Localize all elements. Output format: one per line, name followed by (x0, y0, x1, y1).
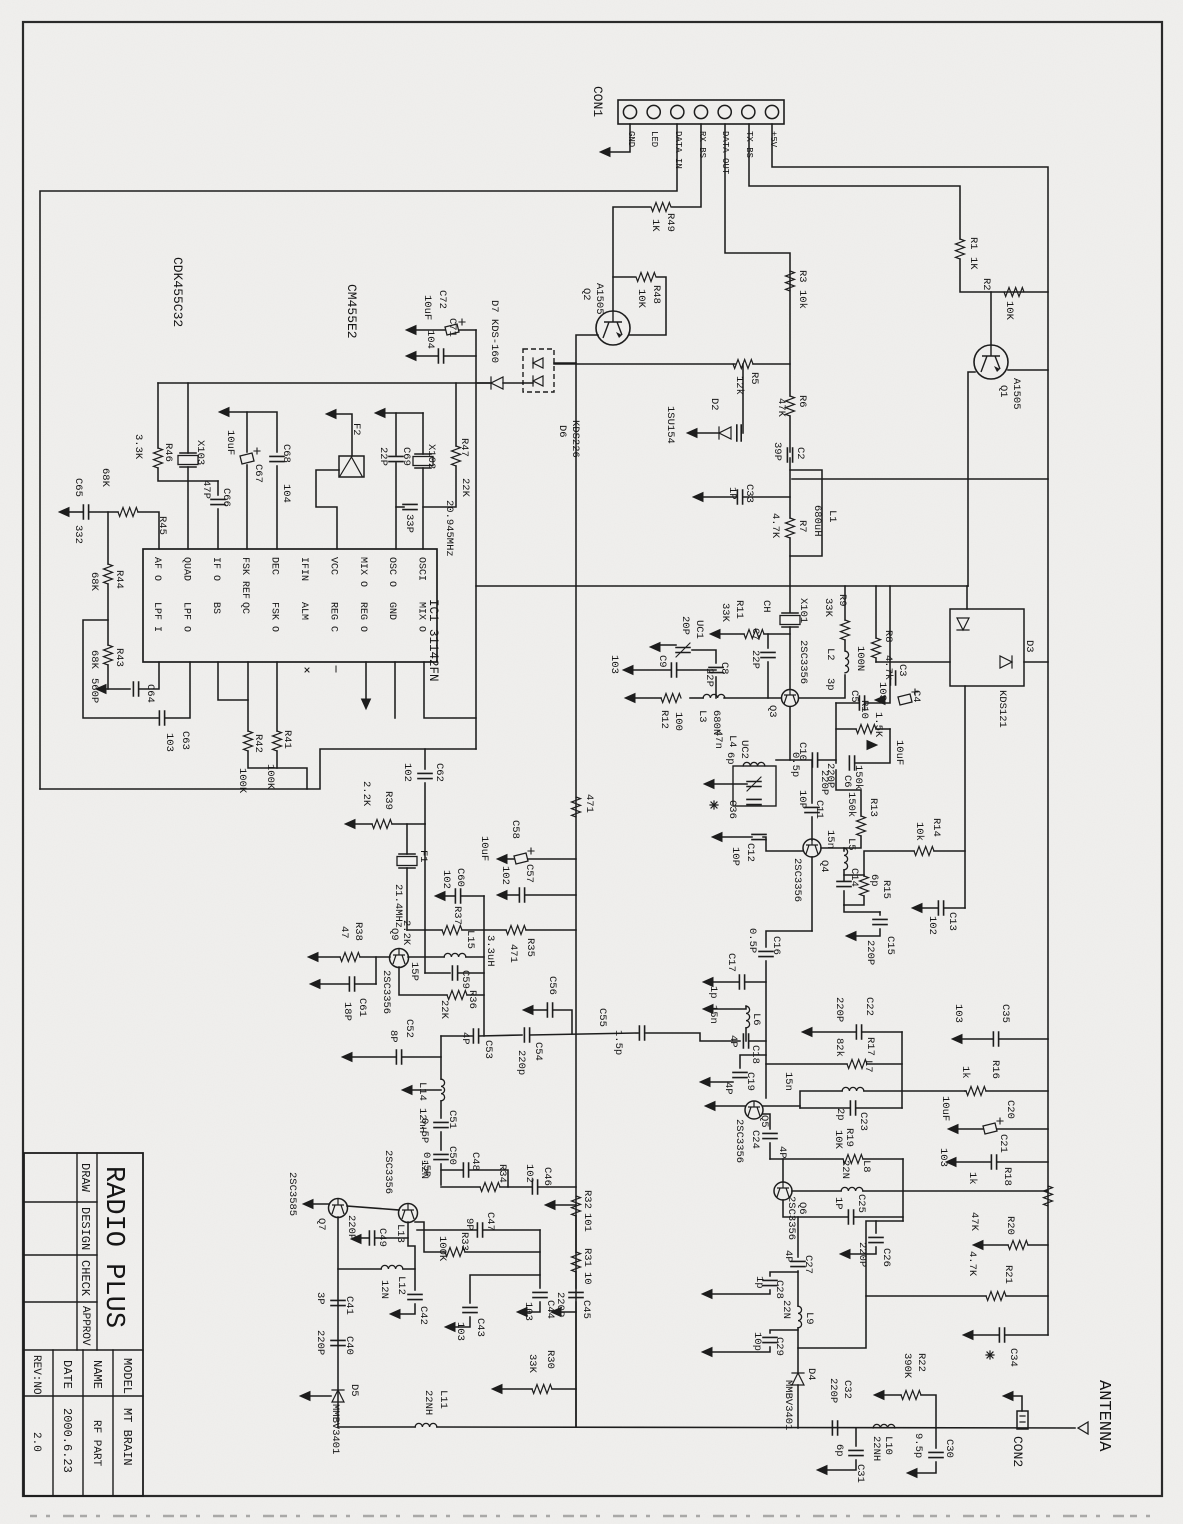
svg-text:1K: 1K (649, 219, 661, 232)
svg-text:FSK REF: FSK REF (239, 557, 250, 599)
svg-text:C62: C62 (433, 763, 445, 782)
svg-text:1k: 1k (966, 1172, 978, 1185)
svg-text:L8: L8 (860, 1160, 872, 1173)
svg-text:IC1 31142FN: IC1 31142FN (426, 599, 440, 682)
svg-text:CON1: CON1 (590, 86, 605, 117)
svg-text:R16: R16 (989, 1060, 1001, 1079)
svg-text:R36: R36 (466, 990, 478, 1009)
svg-text:Q4: Q4 (818, 860, 830, 873)
svg-text:C30: C30 (943, 1439, 955, 1458)
svg-text:APPROV: APPROV (79, 1306, 91, 1346)
svg-text:103: 103 (454, 1322, 466, 1341)
svg-text:C13: C13 (946, 912, 958, 931)
svg-text:C20: C20 (1004, 1100, 1016, 1119)
svg-text:C54: C54 (532, 1042, 544, 1061)
svg-text:LED: LED (649, 131, 659, 147)
svg-text:C33: C33 (743, 484, 755, 503)
svg-text:102: 102 (523, 1164, 535, 1183)
svg-text:10k: 10k (913, 822, 925, 841)
svg-text:C55: C55 (596, 1008, 608, 1027)
svg-text:22P: 22P (749, 650, 761, 669)
svg-text:6p: 6p (724, 752, 736, 765)
svg-text:REV:NO: REV:NO (30, 1355, 42, 1395)
svg-text:R5: R5 (748, 372, 760, 385)
svg-text:D5: D5 (348, 1384, 360, 1397)
svg-text:C11: C11 (813, 800, 825, 819)
svg-text:2SC3356: 2SC3356 (380, 970, 392, 1014)
svg-text:33P: 33P (403, 514, 415, 533)
svg-text:R45: R45 (156, 516, 168, 535)
svg-text:C72: C72 (436, 290, 448, 309)
svg-text:R13: R13 (867, 798, 879, 817)
svg-text:C42: C42 (417, 1306, 429, 1325)
svg-text:R30: R30 (544, 1350, 556, 1369)
svg-text:C43: C43 (474, 1318, 486, 1337)
svg-text:1k: 1k (959, 1066, 971, 1079)
svg-text:KDS226: KDS226 (569, 420, 581, 458)
svg-text:Q9: Q9 (388, 928, 400, 941)
svg-text:R42: R42 (252, 734, 264, 753)
svg-text:R39: R39 (382, 791, 394, 810)
svg-text:D7 KDS-160: D7 KDS-160 (488, 300, 500, 363)
svg-text:R44: R44 (113, 570, 125, 589)
svg-text:R48: R48 (650, 285, 662, 304)
svg-text:4P: 4P (459, 1032, 471, 1045)
svg-text:LPF I: LPF I (151, 602, 162, 632)
svg-text:C27: C27 (802, 1255, 814, 1274)
svg-text:22K: 22K (459, 478, 471, 498)
svg-text:R33: R33 (458, 1232, 470, 1251)
svg-text:100K: 100K (436, 1236, 448, 1262)
svg-text:L9: L9 (803, 1312, 815, 1325)
svg-text:Q2: Q2 (580, 288, 592, 301)
svg-text:1SU154: 1SU154 (664, 406, 676, 444)
svg-text:9P: 9P (463, 1218, 475, 1231)
svg-text:220P: 220P (345, 1215, 357, 1240)
svg-text:A1505: A1505 (1010, 378, 1022, 410)
svg-text:R18: R18 (1001, 1167, 1013, 1186)
svg-text:AF O: AF O (151, 557, 162, 581)
svg-text:22NH: 22NH (422, 1390, 434, 1415)
svg-text:220p: 220p (515, 1050, 527, 1075)
svg-text:QC: QC (239, 602, 250, 614)
svg-text:C34: C34 (1007, 1348, 1019, 1367)
svg-text:1P: 1P (832, 1197, 844, 1210)
svg-text:R32: R32 (581, 1190, 593, 1209)
svg-text:C50: C50 (446, 1146, 458, 1165)
svg-text:L11: L11 (437, 1390, 449, 1409)
svg-text:C67: C67 (252, 464, 264, 483)
svg-text:R9: R9 (836, 594, 848, 607)
svg-text:10P: 10P (729, 847, 741, 866)
svg-text:103: 103 (952, 1004, 964, 1023)
svg-text:REG C: REG C (327, 602, 338, 632)
svg-text:R31: R31 (581, 1248, 593, 1267)
svg-text:R8: R8 (882, 630, 894, 643)
svg-text:C15: C15 (884, 936, 896, 955)
svg-text:390K: 390K (901, 1353, 913, 1379)
svg-text:15n: 15n (782, 1072, 794, 1091)
svg-text:X102: X102 (425, 444, 437, 469)
svg-text:MMBV3401: MMBV3401 (329, 1404, 341, 1454)
svg-text:2SC3356: 2SC3356 (733, 1119, 745, 1163)
svg-text:10K: 10K (832, 1130, 844, 1150)
svg-text:C17: C17 (725, 953, 737, 972)
svg-text:C57: C57 (523, 864, 535, 883)
svg-text:471: 471 (507, 944, 519, 963)
svg-text:C60: C60 (454, 868, 466, 887)
svg-text:102: 102 (926, 916, 938, 935)
svg-text:D3: D3 (1023, 640, 1035, 653)
svg-text:C64: C64 (144, 684, 156, 703)
svg-text:C53: C53 (482, 1040, 494, 1059)
svg-text:18P: 18P (341, 1002, 353, 1021)
svg-text:0.5p: 0.5p (789, 752, 801, 777)
svg-text:4.7K: 4.7K (769, 513, 781, 539)
svg-text:LPF O: LPF O (180, 602, 191, 632)
svg-text:C46: C46 (541, 1167, 553, 1186)
svg-text:C35: C35 (999, 1004, 1011, 1023)
svg-text:C52: C52 (403, 1019, 415, 1038)
svg-text:RX BS: RX BS (697, 131, 707, 158)
svg-text:DATE: DATE (60, 1360, 74, 1389)
svg-text:BS: BS (210, 602, 221, 614)
svg-text:3p: 3p (824, 678, 836, 691)
svg-text:R35: R35 (524, 938, 536, 957)
svg-text:332: 332 (72, 525, 84, 544)
svg-text:L2: L2 (824, 648, 836, 661)
svg-text:UC1: UC1 (693, 620, 705, 639)
svg-text:C14: C14 (848, 868, 860, 887)
svg-text:R47: R47 (458, 438, 470, 457)
svg-text:DRAW: DRAW (78, 1163, 92, 1193)
svg-text:10k: 10k (796, 290, 808, 309)
svg-text:C36: C36 (726, 800, 738, 819)
svg-text:103: 103 (937, 1148, 949, 1167)
svg-text:C47: C47 (484, 1212, 496, 1231)
svg-text:C2: C2 (794, 447, 806, 460)
svg-text:47P: 47P (200, 480, 212, 499)
svg-text:L15: L15 (464, 930, 476, 949)
svg-text:C23: C23 (857, 1112, 869, 1131)
svg-text:10uF: 10uF (224, 430, 236, 455)
svg-text:4P: 4P (727, 1035, 739, 1048)
svg-text:47K: 47K (968, 1212, 980, 1232)
svg-text:2SC3356: 2SC3356 (791, 858, 803, 902)
svg-text:C48: C48 (469, 1152, 481, 1171)
svg-text:47: 47 (338, 926, 350, 939)
svg-text:R49: R49 (664, 213, 676, 232)
svg-text:1.5p: 1.5p (612, 1030, 624, 1055)
svg-text:RADIO PLUS: RADIO PLUS (98, 1166, 128, 1328)
svg-text:2.2K: 2.2K (400, 920, 412, 946)
svg-text:10: 10 (581, 1272, 593, 1285)
svg-text:C56: C56 (546, 976, 558, 995)
svg-text:10uF: 10uF (478, 836, 490, 861)
svg-text:C69: C69 (400, 447, 412, 466)
svg-text:C12: C12 (744, 843, 756, 862)
svg-text:6p: 6p (868, 874, 880, 887)
svg-text:2SC3356: 2SC3356 (797, 640, 809, 684)
svg-text:150k: 150k (852, 765, 864, 790)
svg-text:R15: R15 (880, 880, 892, 899)
svg-text:UC2: UC2 (738, 740, 750, 759)
svg-text:4P: 4P (776, 1146, 788, 1159)
svg-text:ALM: ALM (298, 602, 309, 620)
svg-text:103: 103 (163, 733, 175, 752)
svg-text:R11: R11 (733, 600, 745, 619)
svg-text:22P: 22P (703, 668, 715, 687)
svg-text:R21: R21 (1002, 1265, 1014, 1284)
svg-text:0.5P: 0.5P (746, 928, 758, 953)
svg-text:R34: R34 (496, 1164, 508, 1183)
svg-text:4P: 4P (722, 1082, 734, 1095)
svg-text:10uF: 10uF (421, 295, 433, 320)
svg-text:2SC3356: 2SC3356 (785, 1196, 797, 1240)
svg-text:68K: 68K (88, 572, 100, 592)
svg-text:4.7K: 4.7K (966, 1251, 978, 1277)
svg-text:D4: D4 (805, 1368, 817, 1381)
svg-text:R14: R14 (930, 818, 942, 837)
svg-text:CDK455C32: CDK455C32 (170, 257, 185, 327)
svg-text:X103: X103 (194, 440, 206, 465)
svg-text:R7: R7 (796, 520, 808, 533)
svg-text:33K: 33K (719, 603, 731, 623)
svg-text:MT BRAIN: MT BRAIN (120, 1408, 134, 1466)
svg-text:22N: 22N (839, 1160, 851, 1179)
svg-text:9.5p: 9.5p (912, 1433, 924, 1458)
svg-text:1.5K: 1.5K (872, 712, 884, 738)
svg-text:R22: R22 (915, 1353, 927, 1372)
svg-text:L14: L14 (416, 1082, 428, 1101)
svg-text:IF O: IF O (210, 557, 221, 581)
svg-text:REG O: REG O (357, 602, 368, 632)
svg-text:10uF: 10uF (939, 1096, 951, 1121)
svg-text:10K: 10K (1003, 301, 1015, 321)
svg-text:ANTENNA: ANTENNA (1094, 1380, 1113, 1452)
svg-text:A1505: A1505 (593, 283, 605, 315)
svg-text:12N: 12N (378, 1280, 390, 1299)
svg-text:R38: R38 (352, 922, 364, 941)
svg-text:39P: 39P (771, 442, 783, 461)
svg-text:10uF: 10uF (893, 740, 905, 765)
svg-text:10P: 10P (796, 790, 808, 809)
svg-text:L3: L3 (696, 710, 708, 723)
svg-text:20P: 20P (679, 616, 691, 635)
svg-text:220P: 220P (827, 1378, 839, 1403)
svg-text:3.3K: 3.3K (132, 434, 144, 460)
svg-text:MMBV3401: MMBV3401 (782, 1380, 794, 1430)
svg-text:82k: 82k (833, 1038, 845, 1057)
svg-text:R6: R6 (796, 395, 808, 408)
svg-text:2.2K: 2.2K (360, 781, 372, 807)
svg-text:R17: R17 (864, 1037, 876, 1056)
svg-text:C63: C63 (179, 731, 191, 750)
svg-text:2000.6.23: 2000.6.23 (60, 1408, 74, 1473)
svg-text:3.3uH: 3.3uH (484, 935, 496, 967)
svg-text:R43: R43 (113, 648, 125, 667)
svg-text:MODEL: MODEL (120, 1358, 134, 1394)
svg-text:22K: 22K (438, 1000, 450, 1020)
svg-text:C25: C25 (855, 1194, 867, 1213)
svg-text:OSC O: OSC O (386, 557, 397, 587)
svg-text:C29: C29 (773, 1337, 785, 1356)
svg-text:680uH: 680uH (811, 505, 823, 537)
svg-text:220P: 220P (314, 1330, 326, 1355)
svg-text:C8: C8 (718, 662, 730, 675)
svg-text:C58: C58 (509, 820, 521, 839)
svg-text:102: 102 (401, 763, 413, 782)
svg-text:R41: R41 (281, 730, 293, 749)
svg-text:68K: 68K (99, 468, 111, 488)
svg-text:150k: 150k (845, 792, 857, 817)
svg-text:D6: D6 (556, 425, 568, 438)
svg-text:2SC3585: 2SC3585 (286, 1172, 298, 1216)
svg-text:L12: L12 (395, 1276, 407, 1295)
svg-text:C6: C6 (841, 775, 853, 788)
svg-text:220P: 220P (818, 770, 830, 795)
svg-text:C71: C71 (446, 318, 458, 337)
svg-text:100N: 100N (854, 646, 866, 671)
svg-text:R2: R2 (980, 278, 992, 291)
svg-text:R20: R20 (1004, 1216, 1016, 1235)
svg-text:C4: C4 (910, 690, 922, 703)
svg-text:C41: C41 (343, 1296, 355, 1315)
svg-text:C3: C3 (896, 664, 908, 677)
svg-text:47K: 47K (775, 398, 787, 418)
svg-text:X101: X101 (797, 598, 809, 623)
svg-text:MIX O: MIX O (416, 602, 427, 632)
svg-text:Q7: Q7 (315, 1218, 327, 1231)
svg-text:FSK O: FSK O (269, 602, 280, 632)
svg-text:100K: 100K (236, 768, 248, 794)
svg-text:GND: GND (626, 131, 636, 147)
svg-text:C45: C45 (580, 1300, 592, 1319)
svg-text:560P: 560P (88, 678, 100, 703)
svg-text:CH: CH (760, 600, 772, 613)
svg-text:47n: 47n (712, 730, 724, 749)
svg-text:C32: C32 (841, 1380, 853, 1399)
svg-text:15n: 15n (824, 830, 836, 849)
svg-text:10p: 10p (751, 1332, 763, 1351)
svg-text:4P: 4P (782, 1250, 794, 1263)
svg-text:QUAD: QUAD (180, 557, 191, 581)
svg-text:C28: C28 (773, 1280, 785, 1299)
svg-text:C21: C21 (997, 1134, 1009, 1153)
svg-text:4.7k: 4.7k (882, 655, 894, 680)
svg-text:C51: C51 (446, 1110, 458, 1129)
svg-text:C26: C26 (880, 1248, 892, 1267)
svg-text:L6: L6 (750, 1013, 762, 1026)
svg-text:Q3: Q3 (766, 705, 778, 718)
svg-text:104: 104 (280, 484, 292, 503)
svg-text:+5V: +5V (768, 131, 778, 148)
svg-text:220P: 220P (833, 997, 845, 1022)
svg-text:KDS121: KDS121 (996, 690, 1008, 728)
svg-text:L1: L1 (826, 510, 838, 523)
svg-text:OSCI: OSCI (416, 557, 427, 581)
svg-text:L10: L10 (882, 1436, 894, 1455)
svg-text:102: 102 (440, 870, 452, 889)
svg-text:R3: R3 (796, 270, 808, 283)
svg-text:C66: C66 (220, 488, 232, 507)
svg-text:RF PART: RF PART (90, 1420, 102, 1467)
svg-text:C19: C19 (744, 1072, 756, 1091)
svg-text:102: 102 (499, 866, 511, 885)
svg-text:Q5: Q5 (758, 1115, 770, 1128)
svg-text:L7: L7 (862, 1060, 874, 1073)
svg-text:0.5P: 0.5P (418, 1118, 430, 1143)
svg-text:471: 471 (583, 794, 595, 813)
svg-text:100: 100 (672, 712, 684, 731)
svg-text:DESIGN: DESIGN (78, 1207, 92, 1250)
svg-text:104: 104 (424, 330, 436, 349)
svg-text:CHECK: CHECK (78, 1260, 92, 1297)
svg-text:22NH: 22NH (870, 1436, 882, 1461)
svg-text:C7: C7 (749, 628, 761, 641)
svg-text:Q1: Q1 (997, 385, 1009, 398)
svg-text:D2: D2 (708, 398, 720, 411)
svg-text:R1: R1 (967, 237, 979, 250)
svg-text:F1: F1 (417, 850, 429, 863)
svg-text:68K: 68K (88, 650, 100, 670)
svg-text:22P: 22P (377, 447, 389, 466)
svg-text:L13: L13 (394, 1224, 406, 1243)
svg-text:R12: R12 (658, 710, 670, 729)
svg-text:2SC3356: 2SC3356 (382, 1150, 394, 1194)
svg-text:C24: C24 (749, 1130, 761, 1149)
svg-text:R46: R46 (162, 443, 174, 462)
svg-text:8P: 8P (387, 1030, 399, 1043)
svg-text:2.0: 2.0 (30, 1432, 42, 1452)
svg-text:1p: 1p (753, 1276, 765, 1289)
svg-text:DEC: DEC (269, 557, 280, 575)
svg-text:C22: C22 (863, 997, 875, 1016)
svg-text:C16: C16 (770, 936, 782, 955)
svg-text:33K: 33K (822, 598, 834, 618)
svg-text:22N: 22N (780, 1300, 792, 1319)
svg-text:33K: 33K (526, 1354, 538, 1374)
svg-text:IFIN: IFIN (298, 557, 309, 581)
svg-text:10K: 10K (635, 289, 647, 309)
svg-text:CM455E2: CM455E2 (344, 284, 359, 339)
svg-text:1K: 1K (967, 257, 979, 270)
svg-text:C9: C9 (656, 655, 668, 668)
svg-text:15P: 15P (408, 962, 420, 981)
svg-text:12N: 12N (418, 1160, 430, 1179)
svg-text:MIX O: MIX O (357, 557, 368, 587)
svg-text:2p: 2p (834, 1108, 846, 1121)
svg-text:R37: R37 (451, 906, 463, 925)
svg-text:3P: 3P (314, 1292, 326, 1305)
svg-text:C65: C65 (72, 478, 84, 497)
svg-text:C61: C61 (356, 998, 368, 1017)
svg-text:C40: C40 (343, 1336, 355, 1355)
svg-text:6p: 6p (833, 1444, 845, 1457)
svg-text:NAME: NAME (90, 1360, 104, 1389)
svg-text:L4: L4 (726, 735, 738, 748)
svg-text:220P: 220P (864, 940, 876, 965)
svg-text:DATA IN: DATA IN (673, 131, 683, 169)
svg-text:101: 101 (581, 1213, 593, 1232)
svg-text:GND: GND (386, 602, 397, 620)
svg-text:C68: C68 (280, 444, 292, 463)
svg-text:VCC: VCC (327, 557, 338, 575)
svg-text:103: 103 (608, 655, 620, 674)
svg-text:20.945MHz: 20.945MHz (443, 500, 455, 557)
svg-text:CON2: CON2 (1010, 1436, 1025, 1467)
